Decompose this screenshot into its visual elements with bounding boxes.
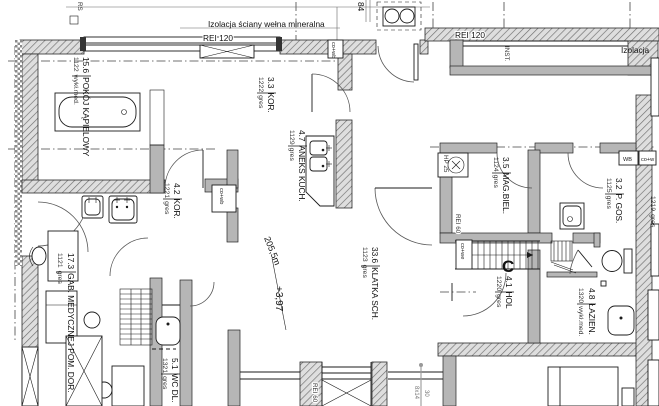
shaft-label-wb: WB [623,157,632,163]
room-label-p-gos: 3.2P. GOS. [614,178,624,223]
shaft-label-top: co+wb [330,42,336,58]
note-hp-25: HP 25 [442,155,449,173]
room-label-kor-33: 3.3KOR. [266,77,276,113]
washbasin-bathroom [608,306,634,335]
room-label-klatka-sch: 33.6KLATKA SCH. [370,247,380,320]
note-rei-120-left: REI 120 [203,33,233,43]
washbasin-medical-1 [82,196,103,218]
room-sublabel-klatka-sch: 1123gres [361,247,368,278]
service-stair [120,289,152,345]
lintel-x-box [200,45,254,58]
room-label-mag-biel: 3.5MAG.BIEL. [501,157,511,214]
note-rs-mark: RS [76,2,83,11]
note-slope-mark: 205,5m [262,235,283,267]
room-label-lazienka: 4.8ŁAZIEN. [587,288,597,335]
kitchen-counter [306,136,334,206]
stair-dim-b: 30 [423,390,429,397]
room-label-hol: 4.1HOL [504,276,514,309]
note-rei-60-lift: REI 60 [311,383,318,403]
elevator [322,362,371,406]
roof-fan-unit [377,2,421,30]
note-inst-shaft: INST. [503,46,510,62]
side-table [112,366,144,406]
note-rei-60-wall: REI 60 [454,214,461,234]
stair-dim-a: 8x14 [413,386,419,400]
note-rei-120-right: REI 120 [455,30,485,40]
room-label-wc: 5.1WC DL. [170,358,180,403]
room-sublabel-lazienka: 1320wykł.med. [577,288,584,336]
room-label-aneks-kuch: 4.7ANEKS KUCH. [297,130,307,202]
room-label-gabinet: 17.3GAB. MEDYCZNEJ POM. DOR. [66,253,76,393]
toilet [601,249,632,286]
note-level-mark: +3,97 [273,286,284,312]
washbasin-medical-2 [109,196,137,223]
shaft-label-right: co+w [641,157,655,163]
washing-machine [560,203,584,229]
note-insulation-top: Izolacja ściany wełna mineralna [208,19,325,29]
floor-plan: co+wb co+wb co+we WB co+w 15.6POKÓJ KĄPI… [0,0,659,406]
shaft-label-kitchen: co+wb [218,188,224,204]
note-dim-84: 84 [356,2,366,12]
main-staircase [455,241,576,273]
bed [548,367,634,406]
note-insulation-right: Izolacja [621,45,650,55]
room-label-kor-42: 4.2KOR. [172,183,182,219]
bathtub [55,93,140,131]
stair-letter-c: C [502,257,514,276]
room-sublabel-pokoj-kapielowy: 1122wykł.med. [72,57,79,105]
shaft-label-stairs: co+we [459,243,465,259]
window-x-radiator [22,347,38,406]
room-label-pokoj-kapielowy: 15.6POKÓJ KĄPIELOWY [81,57,91,157]
